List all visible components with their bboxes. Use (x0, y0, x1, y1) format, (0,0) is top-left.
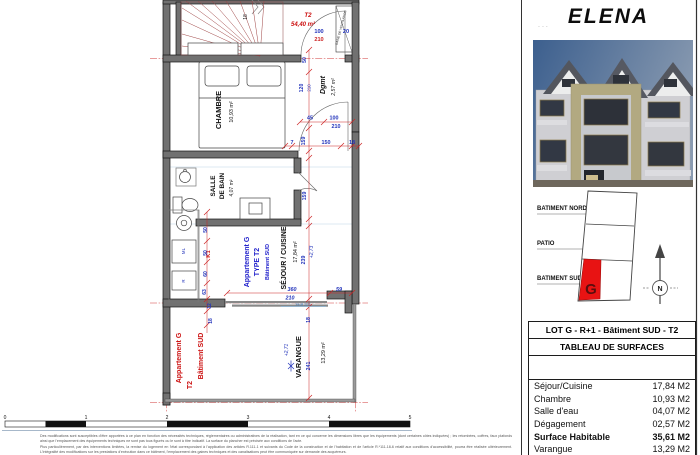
building-render (533, 40, 699, 187)
room-label-chambre: CHAMBRE (214, 91, 223, 129)
wardrobe (241, 43, 283, 55)
table-row: Chambre 10,93 M2 (529, 393, 695, 406)
scale-label: 0 (4, 415, 7, 421)
row-value: 17,84 M2 (652, 381, 690, 391)
table-row: Dégagement 02,57 M2 (529, 418, 695, 431)
scale-label: 4 (328, 415, 331, 421)
dim: 63 (202, 289, 208, 295)
scale-label: 1 (85, 415, 88, 421)
dim: 360 (288, 287, 297, 293)
dim: 50 (302, 57, 308, 63)
seuil-label: Seuil 2cm (296, 303, 311, 307)
level-varangue: +2,71 (284, 343, 290, 356)
keyplan-lot-letter: G (585, 281, 597, 298)
dim: 7 (291, 140, 294, 146)
dim: 241 (306, 362, 312, 371)
dim: 159 (301, 137, 307, 146)
room-label-sdb-1: SALLE (210, 175, 217, 197)
dim: 12 (207, 303, 213, 309)
row-value: 02,57 M2 (652, 419, 690, 429)
apartment-blue-line2: TYPE T2 (254, 248, 261, 277)
apartment-blue-line1: Appartement G (244, 236, 251, 287)
tap (184, 169, 187, 172)
apartment-red-line2: T2 (187, 381, 194, 389)
scale-label: 5 (409, 415, 412, 421)
floor-plan: 18 (150, 0, 368, 412)
shower-drain (249, 203, 262, 214)
dim: 60 (203, 271, 209, 277)
table-row: Varangue 13,29 M2 (529, 443, 695, 455)
room-area-sejour: 17,84 m² (293, 241, 299, 262)
dim: 210 (314, 37, 323, 43)
varangue-right-rail (353, 304, 356, 402)
disclaimer-paragraph-1: Des modifications sont susceptibles d'êt… (40, 434, 512, 443)
table-row: Salle d'eau 04,07 M2 (529, 405, 695, 418)
table-spacer (529, 356, 695, 380)
dim: 18 (349, 140, 355, 146)
bathroom-door (298, 172, 317, 191)
dim: 150 (322, 140, 331, 146)
room-area-sdb: 4,07 m² (229, 179, 235, 196)
dim: 45 (307, 116, 313, 122)
dim: 100 (330, 116, 339, 122)
wc-bowl (182, 199, 198, 212)
apartment-red-line1: Appartement G (176, 332, 183, 383)
row-label: Surface Habitable (534, 432, 610, 442)
dim: 50 (203, 227, 209, 233)
table-row: Séjour/Cuisine 17,84 M2 (529, 380, 695, 393)
artifact-dots: ... (538, 22, 550, 29)
room-area-chambre: 10,93 m² (229, 101, 235, 122)
dim: 210 (285, 296, 295, 302)
disclaimer: Des modifications sont susceptibles d'êt… (40, 434, 512, 455)
dim: 159 (302, 192, 308, 201)
row-value: 35,61 M2 (652, 432, 690, 442)
keyplan-label-sud: BATIMENT SUD (537, 276, 583, 282)
scale-label: 3 (247, 415, 250, 421)
drawing-sheet: 18 (0, 0, 700, 455)
row-label: Séjour/Cuisine (534, 381, 593, 391)
north-arrow: N (643, 244, 678, 304)
unit-type-label: T2 (304, 12, 312, 19)
dim: 18 (306, 317, 312, 323)
pillow (205, 66, 239, 86)
bay-door-panel (225, 301, 327, 303)
row-label: Dégagement (534, 419, 586, 429)
unit-total-area: 54,40 m² (291, 21, 316, 28)
sink-drain (181, 220, 187, 226)
table-row-surface-habitable: Surface Habitable 35,61 M2 (529, 430, 695, 443)
dim: 210 (307, 84, 312, 92)
row-label: Salle d'eau (534, 406, 578, 416)
row-value: 10,93 M2 (652, 394, 690, 404)
room-label-varangue: VARANGUE (294, 336, 303, 378)
dim: 239 (301, 256, 307, 265)
scale-bar: 0 1 2 3 4 5 (2, 415, 412, 431)
dim: 120 (299, 84, 305, 93)
keyplan-label-nord: BATIMENT NORD (537, 206, 588, 212)
varangue-front-rail (165, 399, 355, 402)
pillow (247, 66, 281, 86)
disclaimer-paragraph-2: Plus particulièrement, par des intervent… (40, 445, 512, 454)
room-label-sdb-2: DE BAIN (219, 172, 226, 199)
row-value: 13,29 M2 (652, 444, 690, 454)
washing-machine-label: ML (181, 247, 186, 254)
dim: 20 (343, 29, 349, 35)
surface-table: LOT G - R+1 - Bâtiment SUD - T2 TABLEAU … (528, 321, 696, 455)
table-lot-header: LOT G - R+1 - Bâtiment SUD - T2 (529, 322, 695, 339)
washbasin (180, 172, 191, 183)
fridge-label: R (181, 279, 186, 282)
dim: 50 (203, 250, 209, 256)
keyplan-label-patio: PATIO (537, 241, 555, 247)
room-label-sejour: SÉJOUR / CUISINE (279, 226, 288, 289)
room-area-dgmt: 2,57 m² (331, 78, 337, 97)
wc-tank (173, 197, 182, 213)
key-plan: BATIMENT NORD PATIO BATIMENT SUD G N (537, 191, 678, 304)
dim: 59 (336, 287, 342, 293)
dim: 210 (332, 124, 341, 130)
apartment-blue-line3: Bâtiment SUD (265, 244, 271, 280)
room-label-dgmt: Dgmt (320, 75, 327, 94)
scale-label: 2 (166, 415, 169, 421)
row-value: 04,07 M2 (652, 406, 690, 416)
row-label: Varangue (534, 444, 572, 454)
dim: 18 (208, 318, 214, 324)
apartment-red-line3: Bâtiment SUD (198, 333, 205, 380)
room-area-varangue: 13,29 m² (321, 342, 327, 363)
wardrobe (188, 43, 238, 55)
row-label: Chambre (534, 394, 571, 404)
stair-riser-count: 18 (243, 14, 249, 20)
table-title: TABLEAU DE SURFACES (529, 339, 695, 356)
dim: 100 (314, 29, 323, 35)
level-sejour: +2,73 (309, 245, 315, 258)
north-letter: N (657, 286, 662, 293)
